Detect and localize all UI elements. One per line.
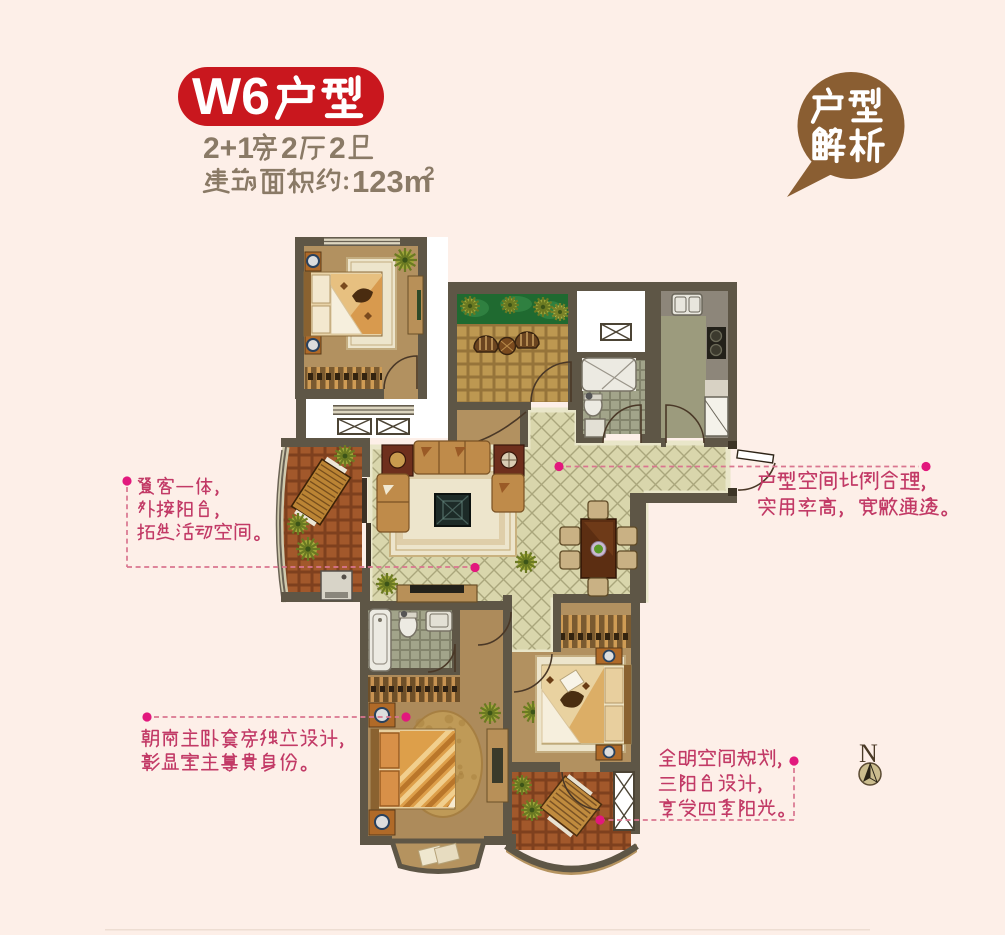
svg-text:2: 2 [329,132,346,165]
svg-text:2+1: 2+1 [203,132,254,165]
svg-text:W6: W6 [192,68,270,126]
svg-text:2: 2 [281,132,298,165]
svg-text:2: 2 [424,164,435,185]
svg-text:123m: 123m [352,164,431,199]
